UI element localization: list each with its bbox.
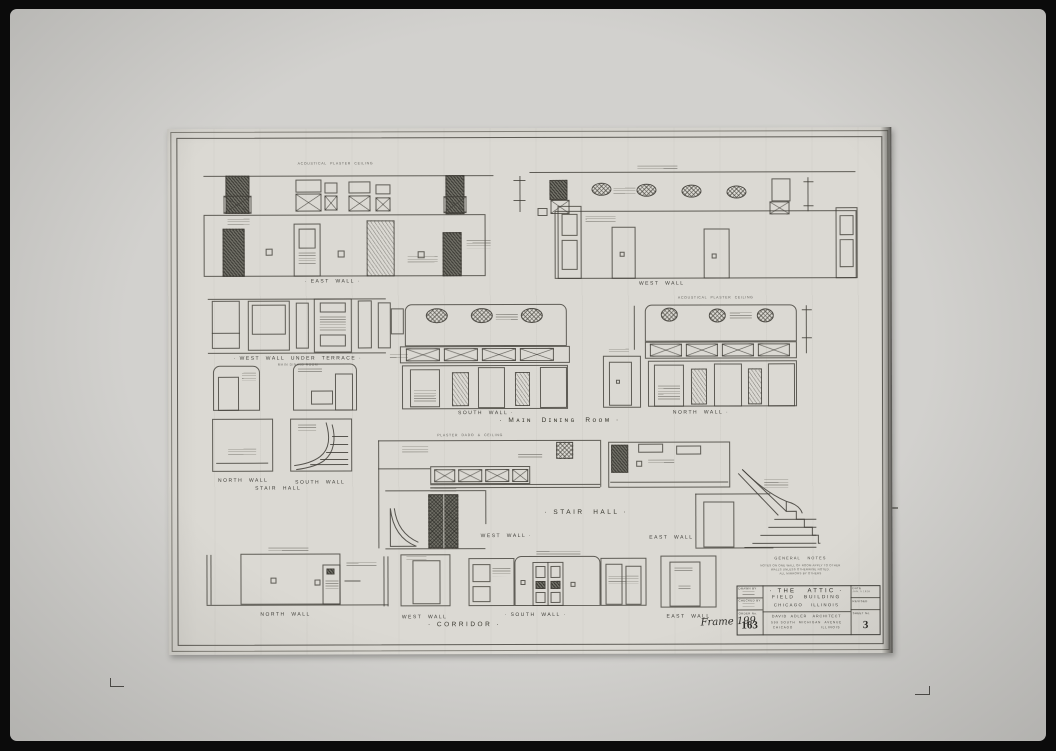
room-edge [695,494,696,548]
panel [473,586,491,602]
micro-note-lines [467,240,491,248]
shelf-line [344,580,360,581]
panel [472,564,490,582]
door-panel [536,592,546,603]
micro-note-lines [320,316,346,330]
micro-note-lines [613,188,635,194]
dimension-tick [514,200,526,201]
micro-note-lines [228,219,250,225]
room-edge [485,490,486,524]
label-cor-south-wall: · SOUTH WALL · [505,613,567,618]
door-hardware [326,569,334,575]
ceiling-line [529,171,855,173]
base-line [216,463,268,464]
micro-note-lines [402,446,428,452]
lattice-oval-ornament [591,183,611,196]
dimension-tick [804,205,814,206]
transom [320,302,346,312]
railing-x-panel [434,469,455,482]
label-mdr-east-wall: · EAST WALL · [305,279,361,284]
door-panel [299,229,316,249]
overdoor-panel [324,183,337,194]
railing-x-panel [650,344,682,357]
door [218,377,239,411]
railing-x-panel [406,348,440,361]
label-cor-west-wall: WEST WALL [402,615,448,620]
title-block-divider [737,609,763,610]
wall-end [387,556,388,606]
dimension-line [519,176,520,212]
micro-note-lines [298,369,322,374]
floor-line [430,484,600,485]
base-line [208,352,386,353]
shelf-line [378,468,430,469]
general-notes-line: ALL MIRRORS BY OTHERS [779,572,821,575]
door [605,564,622,605]
micro-note-lines [325,581,338,591]
door-panel [535,581,545,589]
curved-newel-drawing [386,506,428,548]
label-sh-south-wall: SOUTH WALL [295,480,345,485]
door [625,566,641,605]
micro-note-lines [346,562,376,566]
pilaster-panel [562,240,578,270]
overdoor-panel [348,181,370,193]
drawing-sheet: ACOUSTICAL PLASTER CEILING · EAST WALL · [167,127,892,655]
lattice-oval-ornament [681,185,701,198]
pier-elevation [549,180,567,200]
lattice-panel [556,442,573,459]
radiator-grille [223,196,251,214]
door [609,362,632,406]
window-box [676,446,701,455]
pilaster-panel [562,214,578,236]
door-meeting-stile [443,494,444,548]
lattice-oval-ornament [726,185,746,198]
panel [358,300,372,348]
annotation-acoustical-ceiling-east: ACOUSTICAL PLASTER CEILING [298,162,374,166]
label-mdr-west-wall: WEST WALL [639,282,685,287]
door-panel [550,581,560,589]
micro-note-lines [586,216,616,222]
micro-note-lines [408,256,438,262]
wall-edge [378,440,379,548]
door-dark [443,232,462,276]
label-cor-north-wall: NORTH WALL [260,613,310,618]
annotation-acoustical-ceiling-north: ACOUSTICAL PLASTER CEILING [678,296,754,300]
micro-note-lines [242,373,256,381]
annotation-plaster-dado: PLASTER DADO & CEILING [437,434,503,438]
railing-x-panel [512,469,528,482]
wall-end [383,556,384,606]
micro-note-lines [609,349,629,353]
door-mirrored [452,372,469,406]
window-box [638,444,663,453]
label-stair-hall: · STAIR HALL · [544,510,628,517]
micro-note-lines [518,454,542,459]
switch-plate [570,582,575,587]
wainscot-panel [311,391,333,405]
panel [335,373,353,410]
door-panel [551,592,561,603]
pier-base [538,208,548,216]
sheet-number-value: 3 [863,620,869,631]
micro-note-lines [730,312,752,318]
micro-note-lines [648,460,674,465]
door-mirrored [748,368,762,404]
window-sash [252,305,286,335]
switch-plate [636,461,642,467]
door [478,367,505,408]
micro-note-lines [674,568,692,572]
radiator-grille [295,194,321,212]
drawn-by-label: DRAWN BY [739,587,757,590]
micro-note-lines [406,556,426,560]
label-mdr-north-wall: NORTH WALL · [673,410,729,415]
dimension-tick [513,180,525,181]
dimension-tick [803,181,813,182]
lattice-oval-ornament [521,308,543,323]
railing-x-panel [520,348,554,361]
panel [212,301,240,349]
switch-plate [270,578,276,584]
label-sh-north-wall: NORTH WALL [218,479,268,484]
railing-x-panel [482,348,516,361]
project-city: CHICAGO ILLINOIS [774,603,839,607]
radiator-grille [443,196,466,213]
railing-x-panel [458,469,482,482]
wall-end [210,555,211,605]
railing-x-panel [686,344,718,357]
overdoor-panel [295,180,321,193]
crop-mark-bottom-left [110,678,124,687]
door-panel [535,566,545,578]
door-mirrored [691,369,707,405]
door [768,363,795,406]
drawn-by-initials [743,591,755,595]
radiator-grille [324,196,337,211]
side-box [391,308,404,334]
pier-elevation [771,178,790,201]
radiator-grille [348,195,370,211]
dimension-line [634,306,635,350]
order-number-label: ORDER No. [739,612,758,615]
railing-x-panel [485,469,509,482]
crop-mark-bottom-right [915,686,930,695]
architect-address: 599 SOUTH MICHIGAN AVENUE [771,621,842,624]
panel [296,303,309,349]
lattice-oval-ornament [661,308,678,322]
door-panel [550,566,560,578]
project-building: FIELD BUILDING [772,596,841,601]
title-block-divider [763,585,764,635]
stairhall-elevation [212,419,273,472]
switch-plate [266,249,273,256]
micro-note-lines [228,449,256,455]
micro-note-lines [299,253,316,265]
micro-note-lines [414,390,436,402]
micro-note-lines [637,166,677,170]
micro-note-lines [764,479,788,487]
door-knob [616,380,620,384]
revised-label: REVISED [853,600,868,603]
project-title: · THE ATTIC · [770,588,844,594]
checked-by-initials [743,603,755,606]
railing-x-panel [722,343,754,356]
sheet-edge-shadow [880,127,892,653]
label-sh-west-wall: WEST WALL · [481,534,532,539]
pilaster-panel [840,215,854,235]
switch-plate [314,580,320,586]
date-value: JAN. 5 1928 [853,591,871,593]
door-dark [223,229,245,277]
overdoor-panel [375,184,390,194]
lattice-oval-ornament [757,308,774,322]
dimension-tick [802,337,812,338]
architect-city: CHICAGO ILLINOIS [773,626,841,629]
lattice-oval-ornament [426,308,448,323]
title-block-divider [851,609,881,610]
title-block-divider [851,597,881,598]
label-stair-hall-small: STAIR HALL [255,487,301,492]
label-sh-east-wall: EAST WALL [649,536,693,541]
door-knob [620,252,625,257]
radiator-grille [375,197,390,211]
micro-note-lines [496,314,518,320]
architect-name: DAVID ADLER ARCHITECT [772,615,841,619]
micro-note-lines [298,425,316,431]
micro-note-lines [679,586,691,590]
stair-flight-drawing [728,463,820,549]
order-number-value: 163 [741,620,758,631]
lattice-oval-ornament [471,308,493,323]
switch-plate [338,250,345,257]
wall-end [206,555,207,605]
micro-note-lines [608,576,638,584]
base-panel [320,334,346,346]
label-main-dining-room: · Mᴀɪɴ Dɪɴɪɴɢ Rᴏᴏᴍ · [499,418,620,425]
pilaster-panel [840,239,854,267]
dimension-line [806,305,807,353]
wall-edge [600,440,601,487]
lattice-oval-ornament [636,184,656,197]
door-mirrored [515,372,530,406]
panel [378,302,391,348]
lattice-oval-ornament [709,308,726,322]
micro-note-lines [430,488,456,492]
door [412,560,440,604]
crop-mark-right-edge [892,507,898,509]
hatched-panel [611,445,628,473]
door-mirrored [367,220,395,276]
sheet-number-label: SHEET No. [853,612,871,615]
photo-background: ACOUSTICAL PLASTER CEILING · EAST WALL · [10,9,1046,741]
label-mdr-south-wall: SOUTH WALL · [458,411,514,416]
dimension-tick [802,309,812,310]
door-knob [712,254,717,259]
micro-note-lines [658,386,680,400]
general-notes-title: GENERAL NOTES [774,557,826,561]
micro-note-lines [536,551,580,555]
micro-note-lines [492,568,510,576]
door-meeting-stile [547,562,548,606]
checked-by-label: CHECKED BY [739,599,761,602]
door [714,363,742,406]
floor-line [207,604,389,605]
label-corridor: · CORRIDOR · [428,622,501,629]
railing-x-panel [758,343,790,356]
panel-rail [212,333,240,334]
micro-note-lines [268,548,308,552]
label-west-wall-under-terrace: · WEST WALL UNDER TERRACE · [234,356,363,361]
switch-plate [520,580,525,585]
door [540,367,567,408]
railing-x-panel [444,348,478,361]
